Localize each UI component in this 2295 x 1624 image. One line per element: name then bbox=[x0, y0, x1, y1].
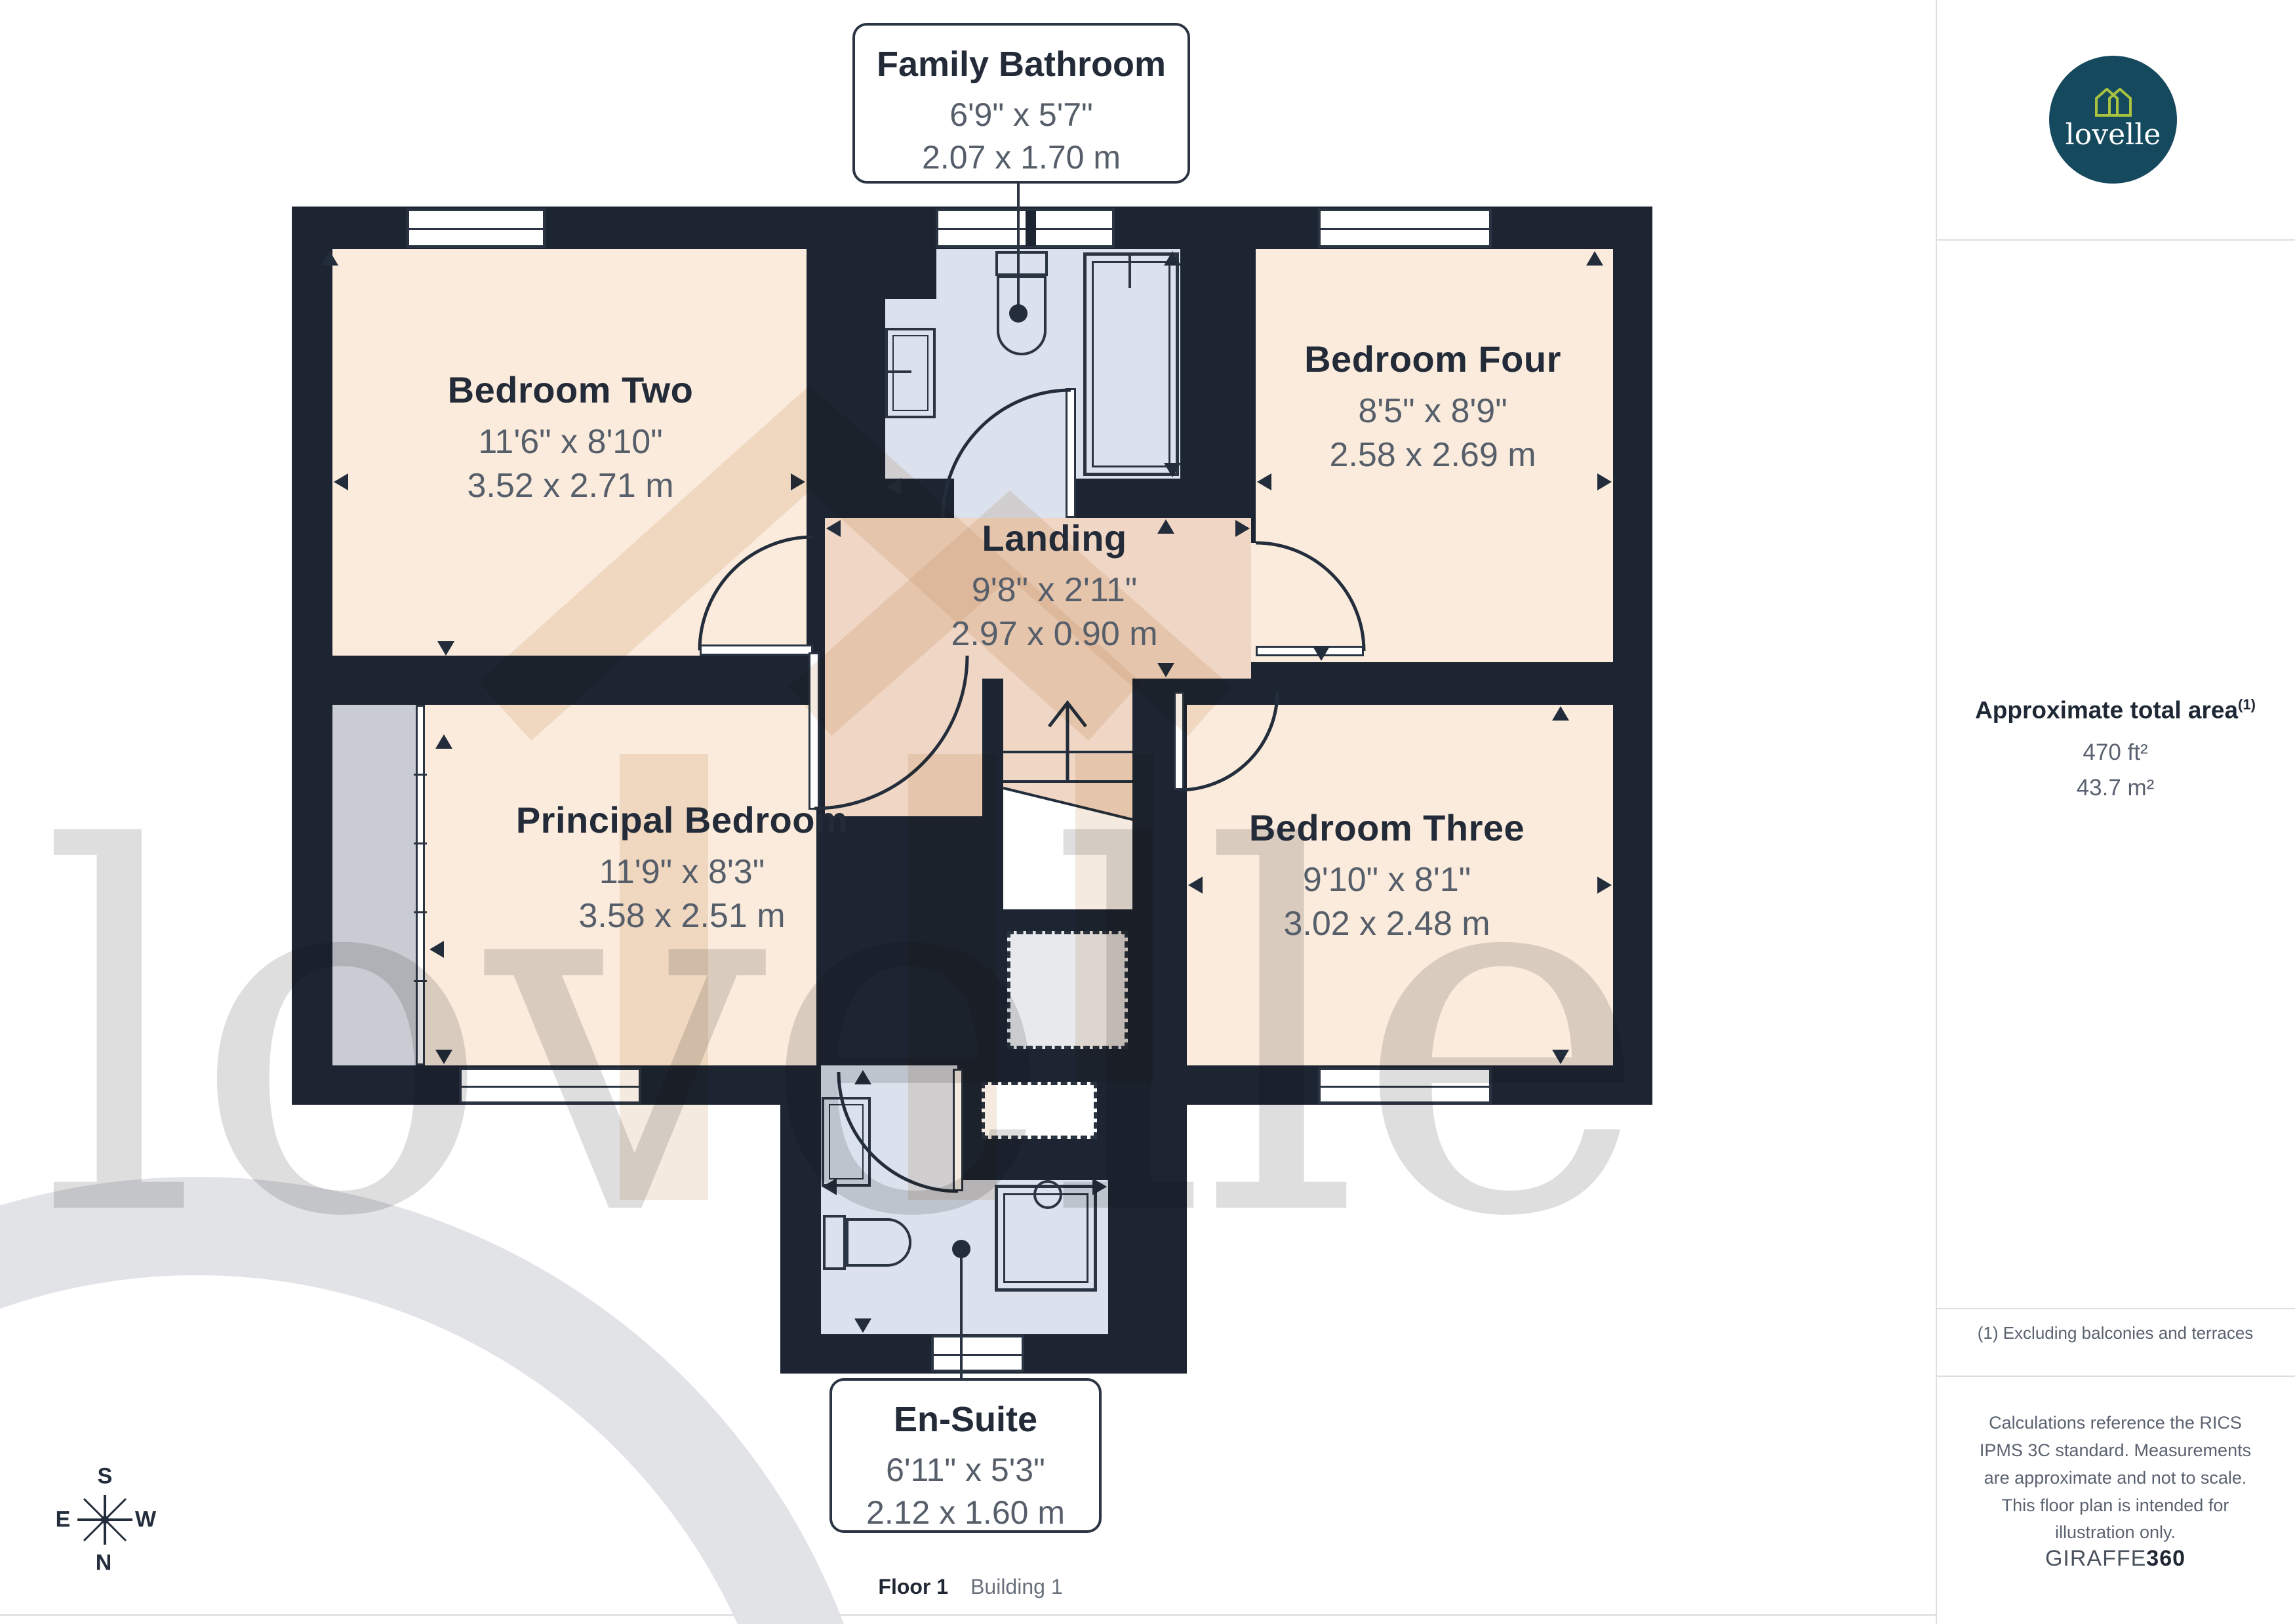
room-dims-metric: 3.58 x 2.51 m bbox=[516, 894, 848, 938]
floor-label: Floor 1 bbox=[878, 1575, 948, 1598]
disclaimer-text: Calculations reference the RICS IPMS 3C … bbox=[1971, 1410, 2260, 1547]
area-footnote: (1) Excluding balconies and terraces bbox=[1978, 1323, 2254, 1343]
toilet-cistern-icon bbox=[995, 251, 1048, 276]
area-imperial: 470 ft² bbox=[2083, 740, 2147, 766]
room-dims-imperial: 6'9" x 5'7" bbox=[855, 94, 1187, 136]
sidebar-divider bbox=[1936, 0, 1937, 1624]
room-name: Bedroom Two bbox=[448, 368, 694, 411]
door-ensuite bbox=[953, 1069, 963, 1191]
room-dims-imperial: 11'9" x 8'3" bbox=[516, 850, 848, 894]
room-dims-imperial: 11'6" x 8'10" bbox=[448, 420, 694, 464]
window-bedroom-four bbox=[1318, 208, 1492, 248]
room-dims-metric: 2.12 x 1.60 m bbox=[832, 1492, 1099, 1534]
sidebar-section-divider bbox=[1937, 1376, 2295, 1377]
stair-void bbox=[1003, 783, 1132, 909]
window-bedroom-two bbox=[407, 208, 546, 248]
area-metric: 43.7 m² bbox=[2077, 775, 2155, 801]
label-landing: Landing 9'8" x 2'11" 2.97 x 0.90 m bbox=[951, 517, 1157, 656]
callout-anchor-dot bbox=[952, 1240, 970, 1258]
room-dims-imperial: 9'10" x 8'1" bbox=[1249, 858, 1525, 902]
compass-north-label: N bbox=[96, 1551, 112, 1576]
shower-icon bbox=[1083, 252, 1179, 476]
toilet-cistern-icon bbox=[823, 1215, 846, 1270]
label-bedroom-three: Bedroom Three 9'10" x 8'1" 3.02 x 2.48 m bbox=[1249, 806, 1525, 945]
giraffe360-brand: GIRAFFE360 bbox=[2045, 1546, 2185, 1572]
floor-landing-vestibule bbox=[825, 679, 982, 816]
room-dims-metric: 2.58 x 2.69 m bbox=[1304, 433, 1561, 477]
label-principal-bedroom: Principal Bedroom 11'9" x 8'3" 3.58 x 2.… bbox=[516, 799, 848, 938]
callout-ensuite: En-Suite 6'11" x 5'3" 2.12 x 1.60 m bbox=[829, 1378, 1102, 1533]
bottom-divider bbox=[0, 1614, 1936, 1616]
bathroom-wall-notch bbox=[885, 249, 936, 299]
compass-west-label: W bbox=[135, 1507, 156, 1533]
shower-pipe bbox=[1128, 254, 1131, 288]
compass-east-label: E bbox=[56, 1507, 71, 1533]
brand-text: GIRAFFE bbox=[2045, 1546, 2146, 1571]
floorplan-page: lovelle bbox=[0, 0, 2295, 1624]
room-dims-imperial: 9'8" x 2'11" bbox=[951, 568, 1157, 612]
area-note-ref: (1) bbox=[2238, 696, 2256, 713]
sidebar-section-divider bbox=[1937, 1308, 2295, 1309]
built-in-wardrobe bbox=[332, 705, 420, 1065]
callout-anchor-dot bbox=[1009, 304, 1028, 323]
window-bathroom bbox=[936, 208, 1115, 248]
sidebar-section-divider bbox=[1937, 239, 2295, 241]
label-bedroom-four: Bedroom Four 8'5" x 8'9" 2.58 x 2.69 m bbox=[1304, 338, 1561, 477]
lovelle-logo: lovelle bbox=[2049, 56, 2177, 184]
bathroom-door-opening bbox=[954, 479, 1075, 519]
callout-connector bbox=[1017, 184, 1020, 313]
window-ensuite bbox=[931, 1335, 1024, 1372]
room-dims-metric: 3.02 x 2.48 m bbox=[1249, 902, 1525, 946]
understairs-storage bbox=[1007, 931, 1128, 1049]
building-label: Building 1 bbox=[970, 1575, 1063, 1598]
room-dims-imperial: 6'11" x 5'3" bbox=[832, 1449, 1099, 1492]
sink-icon bbox=[885, 328, 936, 418]
window-bedroom-three bbox=[1318, 1067, 1492, 1104]
room-name: En-Suite bbox=[832, 1399, 1099, 1440]
slider-tick bbox=[414, 774, 427, 776]
sink-icon bbox=[822, 1097, 871, 1187]
window-principal-bedroom bbox=[459, 1067, 641, 1104]
room-name: Principal Bedroom bbox=[516, 799, 848, 841]
callout-connector bbox=[960, 1249, 963, 1378]
room-name: Landing bbox=[951, 517, 1157, 559]
door-bedroom-three bbox=[1174, 692, 1184, 790]
toilet-icon bbox=[846, 1218, 911, 1267]
door-bedroom-four bbox=[1256, 646, 1364, 656]
room-name: Bedroom Three bbox=[1249, 806, 1525, 849]
wardrobe-sliding-door bbox=[416, 705, 425, 1065]
floor-indicator: Floor 1Building 1 bbox=[878, 1575, 1062, 1599]
compass-star bbox=[77, 1495, 132, 1545]
sink-tap bbox=[885, 370, 911, 373]
slider-tick bbox=[414, 911, 427, 913]
door-bedroom-two bbox=[700, 644, 813, 656]
room-dims-imperial: 8'5" x 8'9" bbox=[1304, 389, 1561, 433]
floor-stairs bbox=[1003, 679, 1132, 783]
room-dims-metric: 3.52 x 2.71 m bbox=[448, 464, 694, 508]
slider-tick bbox=[414, 980, 427, 982]
shower-head-icon bbox=[1033, 1180, 1062, 1209]
callout-family-bathroom: Family Bathroom 6'9" x 5'7" 2.07 x 1.70 … bbox=[852, 23, 1190, 184]
label-bedroom-two: Bedroom Two 11'6" x 8'10" 3.52 x 2.71 m bbox=[448, 368, 694, 507]
compass-south-label: S bbox=[98, 1464, 113, 1490]
door-principal-bedroom bbox=[808, 652, 820, 810]
room-name: Bedroom Four bbox=[1304, 338, 1561, 380]
room-dims-metric: 2.07 x 1.70 m bbox=[855, 136, 1187, 179]
approximate-total-area-title: Approximate total area(1) bbox=[1975, 696, 2256, 724]
brand-suffix: 360 bbox=[2146, 1546, 2185, 1571]
slider-tick bbox=[414, 842, 427, 844]
room-dims-metric: 2.97 x 0.90 m bbox=[951, 612, 1157, 656]
area-title-text: Approximate total area bbox=[1975, 696, 2238, 723]
lovelle-house-icon bbox=[2092, 88, 2134, 117]
cupboard bbox=[982, 1082, 1097, 1139]
logo-wordmark: lovelle bbox=[2065, 118, 2161, 151]
door-bathroom bbox=[1066, 388, 1076, 518]
room-name: Family Bathroom bbox=[855, 44, 1187, 85]
